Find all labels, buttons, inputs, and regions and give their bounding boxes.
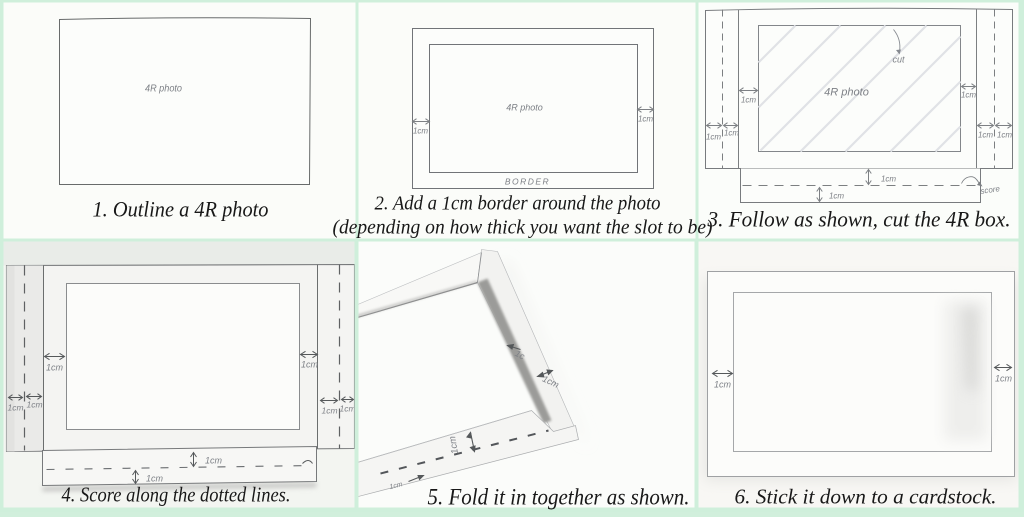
svg-text:4. Score along the dotted line: 4. Score along the dotted lines. (62, 483, 291, 507)
svg-text:1cm: 1cm (741, 96, 756, 105)
svg-text:5. Fold it in together as show: 5. Fold it in together as shown. (428, 485, 690, 511)
svg-text:1cm: 1cm (706, 133, 721, 142)
svg-text:1cm: 1cm (7, 403, 23, 413)
svg-text:1cm: 1cm (714, 380, 732, 390)
svg-text:1cm: 1cm (997, 131, 1012, 140)
svg-text:1cm: 1cm (881, 175, 896, 184)
svg-text:6. Stick it down to a cardstoc: 6. Stick it down to a cardstock. (735, 485, 997, 509)
svg-text:1cm: 1cm (413, 127, 428, 136)
svg-text:BORDER: BORDER (505, 177, 550, 187)
svg-text:4R photo: 4R photo (824, 87, 869, 99)
svg-text:1cm: 1cm (339, 404, 355, 414)
svg-text:3. Follow as shown, cut the 4R: 3. Follow as shown, cut the 4R box. (707, 207, 1011, 232)
svg-text:1cm: 1cm (205, 456, 223, 466)
svg-text:4R photo: 4R photo (506, 103, 543, 113)
svg-text:1cm: 1cm (26, 400, 42, 410)
svg-text:1cm: 1cm (961, 91, 976, 100)
svg-text:1cm: 1cm (321, 406, 337, 416)
svg-text:1cm: 1cm (46, 363, 64, 373)
svg-text:1cm: 1cm (301, 360, 319, 370)
svg-text:cut: cut (892, 55, 905, 65)
svg-text:4R photo: 4R photo (145, 84, 182, 95)
svg-text:(depending on how thick you wa: (depending on how thick you want the slo… (333, 218, 713, 239)
svg-text:1cm: 1cm (724, 129, 739, 138)
svg-text:1. Outline a 4R photo: 1. Outline a 4R photo (93, 197, 269, 222)
svg-text:1cm: 1cm (978, 131, 993, 140)
svg-text:1cm: 1cm (995, 374, 1013, 384)
svg-text:2. Add a 1cm border around the: 2. Add a 1cm border around the photo (375, 194, 661, 215)
svg-text:1cm: 1cm (829, 192, 844, 201)
svg-text:1cm: 1cm (638, 115, 653, 124)
